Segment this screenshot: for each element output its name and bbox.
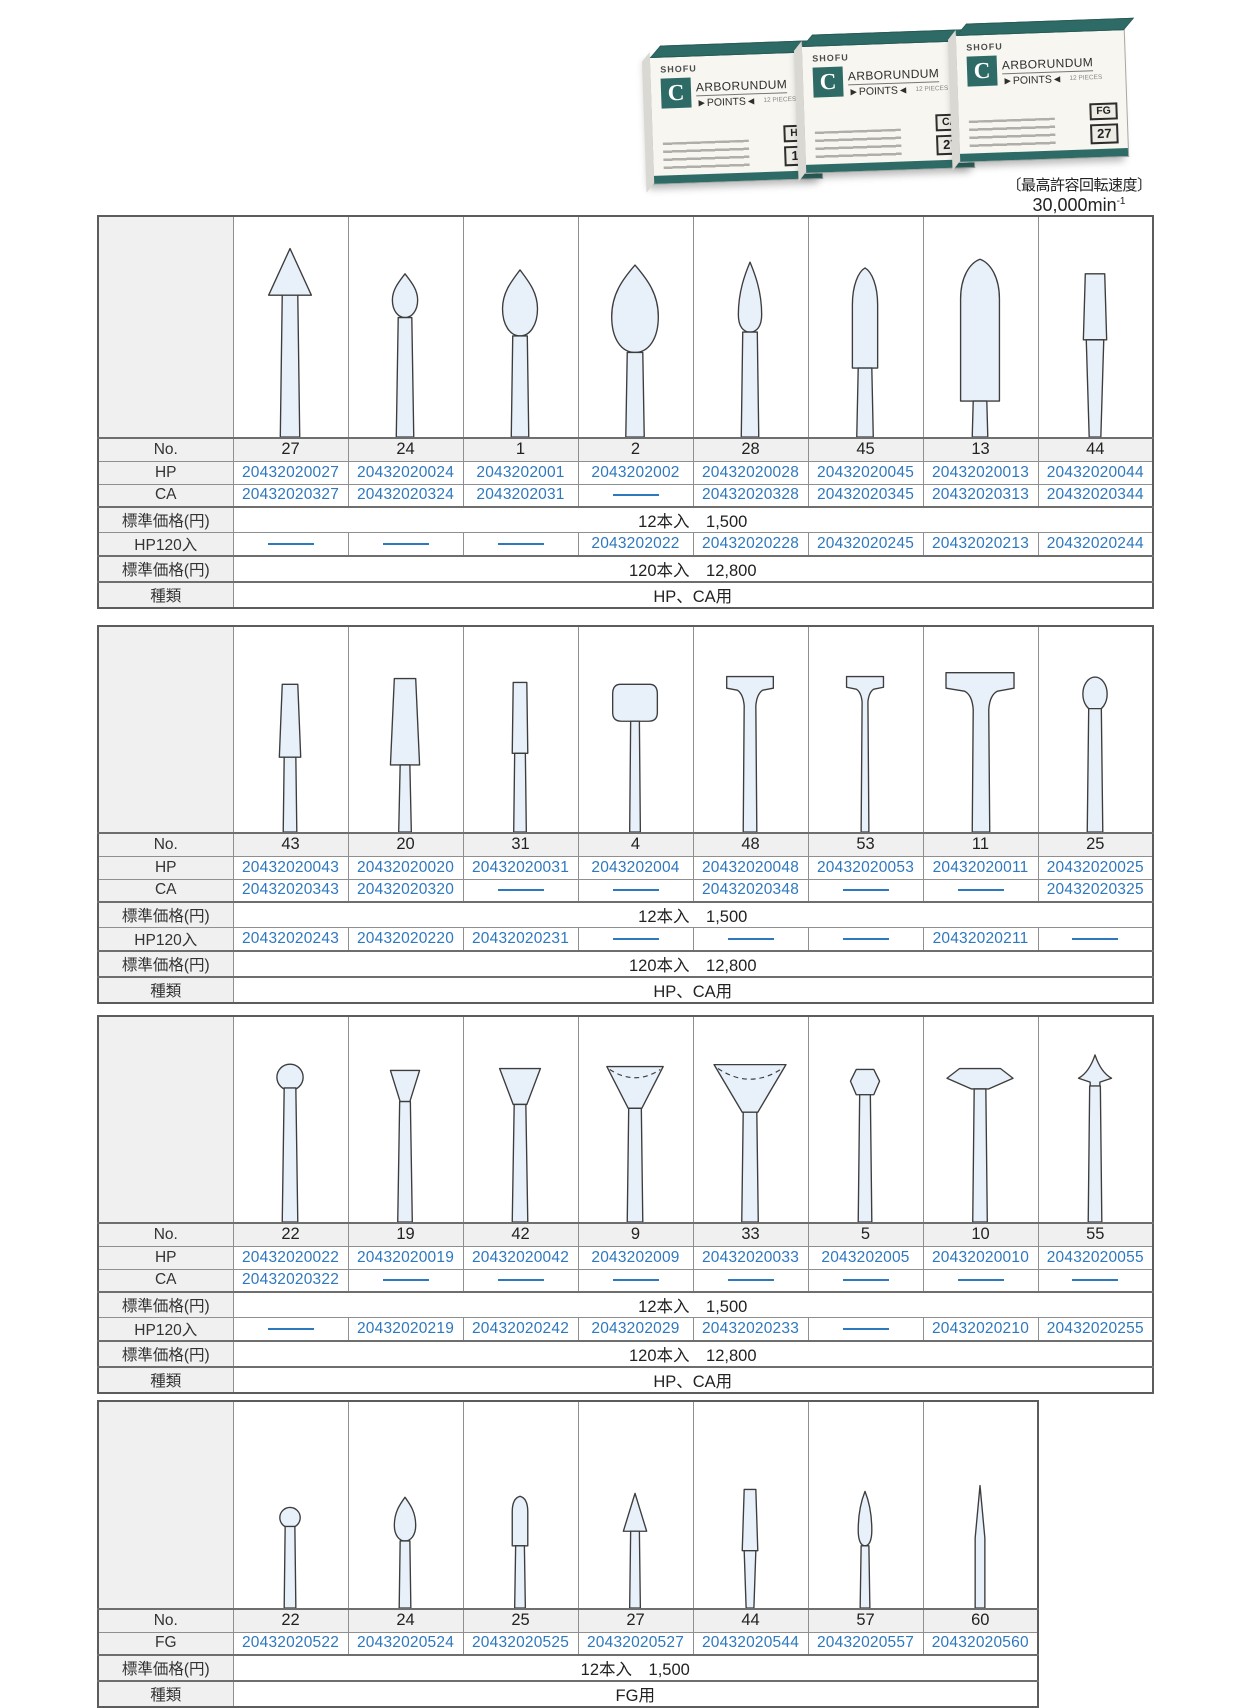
box-bottom-strip (960, 148, 1128, 162)
no-cell: 20 (348, 833, 463, 856)
product-title: ARBORUNDUM (848, 66, 940, 85)
row-label-cell: HP (98, 1246, 233, 1269)
shape-cell (808, 216, 923, 438)
inverted-cone-bur-icon (464, 1018, 577, 1222)
catalog-page: SHOFU C ARBORUNDUM ►POINTS◄ 12 PIECES HP… (0, 0, 1250, 1703)
no-cell: 33 (693, 1223, 808, 1246)
row-label-cell: HP120入 (98, 928, 233, 952)
code-cell (578, 1269, 693, 1292)
code-cell: 20432020525 (463, 1632, 578, 1655)
product-subtitle: ►POINTS◄ (1002, 73, 1062, 87)
no-cell: 24 (348, 438, 463, 461)
code-cell: 20432020033 (693, 1246, 808, 1269)
code-cell (808, 1318, 923, 1342)
code-cell: 2043202029 (578, 1318, 693, 1342)
max-speed-value: 30,000min-1 (998, 195, 1160, 216)
flame-slim-bur-icon (694, 233, 807, 437)
code-cell: 20432020044 (1038, 461, 1153, 484)
row-hp: HP20432020022204320200192043202004220432… (98, 1246, 1153, 1269)
row-ca: CA20432020327204320203242043202031204320… (98, 484, 1153, 507)
taper-column-wide-bur-icon (349, 628, 462, 832)
teardrop-bur-icon (464, 233, 577, 437)
product-code: 20432020013 (932, 464, 1029, 481)
inverted-cone-small-bur-icon (349, 1018, 462, 1222)
product-code: 2043202009 (591, 1249, 679, 1266)
span-value-cell: 12本入 1,500 (233, 1655, 1038, 1681)
code-cell: 20432020233 (693, 1318, 808, 1342)
pieces-text: 12 PIECES (763, 96, 796, 104)
max-speed-number: 30,000min (1033, 195, 1117, 215)
code-cell (233, 533, 348, 557)
no-cell: 10 (923, 1223, 1038, 1246)
span-value-cell: HP、CA用 (233, 977, 1153, 1003)
code-cell: 20432020348 (693, 879, 808, 902)
row-price: 標準価格(円)12本入 1,500 (98, 1655, 1038, 1681)
code-cell: 2043202005 (808, 1246, 923, 1269)
row-label-cell: 標準価格(円) (98, 1341, 233, 1367)
cup-wide-bur-icon (694, 1018, 807, 1222)
code-cell: 2043202031 (463, 484, 578, 507)
no-cell: 31 (463, 833, 578, 856)
shape-cell (693, 216, 808, 438)
row-label-cell: HP120入 (98, 1318, 233, 1342)
not-available-dash (498, 543, 544, 545)
box-bottom-strip (806, 159, 974, 173)
code-cell (808, 1269, 923, 1292)
code-cell: 20432020325 (1038, 879, 1153, 902)
row-type: 種類HP、CA用 (98, 977, 1153, 1003)
shape-row (98, 1401, 1038, 1609)
column-narrow-bur-icon (464, 628, 577, 832)
code-cell: 20432020527 (578, 1632, 693, 1655)
row-label-cell: 標準価格(円) (98, 1655, 233, 1681)
row-label-cell: 標準価格(円) (98, 902, 233, 928)
no-cell: 1 (463, 438, 578, 461)
row-type: 種類HP、CA用 (98, 1367, 1153, 1393)
row-price: 標準価格(円)12本入 1,500 (98, 1292, 1153, 1318)
shape-cell (463, 216, 578, 438)
row-label-cell: 標準価格(円) (98, 951, 233, 977)
code-cell: 20432020024 (348, 461, 463, 484)
shape-cell (463, 1016, 578, 1223)
no-cell: 27 (233, 438, 348, 461)
fineprint-text-blur (969, 118, 1056, 149)
shape-cell (808, 1401, 923, 1609)
taper-cylinder-small-bur-icon (694, 1404, 807, 1608)
product-code: 20432020255 (1047, 1320, 1144, 1337)
code-cell (578, 879, 693, 902)
row-label-cell: HP (98, 461, 233, 484)
not-available-dash (613, 938, 659, 940)
row-hp120: HP120入2043202021920432020242204320202920… (98, 1318, 1153, 1342)
row-label-cell: HP120入 (98, 533, 233, 557)
code-cell: 20432020524 (348, 1632, 463, 1655)
not-available-dash (958, 1279, 1004, 1281)
code-cell: 20432020343 (233, 879, 348, 902)
brand-logo-text: SHOFU (660, 63, 697, 74)
not-available-dash (958, 889, 1004, 891)
row-label-cell: No. (98, 438, 233, 461)
code-cell: 20432020013 (923, 461, 1038, 484)
code-cell: 20432020228 (693, 533, 808, 557)
bullet-small-bur-icon (464, 1404, 577, 1608)
no-cell: 25 (463, 1609, 578, 1632)
product-subtitle: ►POINTS◄ (696, 95, 756, 109)
product-code: 20432020231 (472, 930, 569, 947)
shape-cell (578, 1401, 693, 1609)
product-title: ARBORUNDUM (696, 77, 788, 96)
shape-cell (348, 1401, 463, 1609)
code-cell: 20432020031 (463, 856, 578, 879)
product-subtitle: ►POINTS◄ (848, 84, 908, 98)
max-speed-exponent: -1 (1117, 196, 1126, 207)
no-cell: 11 (923, 833, 1038, 856)
no-cell: 25 (1038, 833, 1153, 856)
row-label-cell: 標準価格(円) (98, 507, 233, 533)
row-price: 標準価格(円)120本入 12,800 (98, 951, 1153, 977)
product-code: 20432020327 (242, 486, 339, 503)
knob-bur-icon (579, 628, 692, 832)
product-code: 2043202005 (821, 1249, 909, 1266)
span-value-cell: 120本入 12,800 (233, 1341, 1153, 1367)
cup-bur-icon (579, 1018, 692, 1222)
product-code: 20432020220 (357, 930, 454, 947)
code-cell: 20432020028 (693, 461, 808, 484)
product-title: ARBORUNDUM (1002, 55, 1094, 74)
code-cell: 20432020313 (923, 484, 1038, 507)
code-cell (233, 1318, 348, 1342)
not-available-dash (1072, 938, 1118, 940)
product-code: 20432020044 (1047, 464, 1144, 481)
no-cell: 44 (693, 1609, 808, 1632)
not-available-dash (383, 1279, 429, 1281)
c-logo-icon: C (661, 78, 692, 109)
code-cell: 20432020328 (693, 484, 808, 507)
product-code: 20432020025 (1047, 859, 1144, 876)
not-available-dash (1072, 1279, 1118, 1281)
torpedo-bur-icon (924, 233, 1037, 437)
shape-cell (1038, 216, 1153, 438)
product-code: 20432020019 (357, 1249, 454, 1266)
not-available-dash (268, 543, 314, 545)
row-label-cell: FG (98, 1632, 233, 1655)
pieces-text: 12 PIECES (1069, 74, 1102, 82)
product-code: 2043202002 (591, 464, 679, 481)
no-cell: 42 (463, 1223, 578, 1246)
shape-cell (693, 626, 808, 833)
shape-cell (578, 1016, 693, 1223)
product-code: 20432020043 (242, 859, 339, 876)
code-cell: 20432020220 (348, 928, 463, 952)
max-speed-note: 〔最高許容回転速度〕 30,000min-1 (998, 174, 1160, 216)
shape-row-label-cell (98, 216, 233, 438)
product-code: 20432020557 (817, 1634, 914, 1651)
span-value-cell: 120本入 12,800 (233, 556, 1153, 582)
code-cell (1038, 1269, 1153, 1292)
row-hp: HP20432020027204320200242043202001204320… (98, 461, 1153, 484)
code-cell: 20432020011 (923, 856, 1038, 879)
product-code: 20432020328 (702, 486, 799, 503)
no-cell: 2 (578, 438, 693, 461)
code-cell: 20432020019 (348, 1246, 463, 1269)
product-code: 20432020053 (817, 859, 914, 876)
product-code: 20432020211 (933, 930, 1029, 947)
row-label-cell: CA (98, 484, 233, 507)
number-tag: 27 (1090, 123, 1119, 144)
span-value-cell: FG用 (233, 1681, 1038, 1707)
product-code: 2043202001 (476, 464, 564, 481)
box-bottom-strip (654, 170, 822, 184)
product-code: 20432020325 (1047, 881, 1144, 898)
code-cell: 20432020025 (1038, 856, 1153, 879)
code-cell: 2043202002 (578, 461, 693, 484)
shape-cell (923, 1401, 1038, 1609)
no-cell: 19 (348, 1223, 463, 1246)
row-hp: HP20432020043204320200202043202003120432… (98, 856, 1153, 879)
code-cell: 20432020048 (693, 856, 808, 879)
ball-bur-icon (234, 1018, 347, 1222)
code-cell: 20432020345 (808, 484, 923, 507)
product-code: 20432020024 (357, 464, 454, 481)
product-code: 20432020345 (817, 486, 914, 503)
bullet-bur-icon (809, 233, 922, 437)
code-cell: 20432020213 (923, 533, 1038, 557)
span-value-cell: HP、CA用 (233, 582, 1153, 608)
code-cell: 20432020244 (1038, 533, 1153, 557)
shape-cell (923, 216, 1038, 438)
needle-bur-icon (924, 1404, 1037, 1608)
row-hp120: HP120入2043202024320432020220204320202312… (98, 928, 1153, 952)
product-photo: SHOFU C ARBORUNDUM ►POINTS◄ 12 PIECES HP… (645, 16, 1155, 186)
no-cell: 55 (1038, 1223, 1153, 1246)
code-cell: 20432020231 (463, 928, 578, 952)
code-cell (923, 1269, 1038, 1292)
product-code: 20432020028 (702, 464, 799, 481)
row-label-cell: No. (98, 833, 233, 856)
no-cell: 45 (808, 438, 923, 461)
not-available-dash (613, 1279, 659, 1281)
not-available-dash (843, 1279, 889, 1281)
not-available-dash (498, 889, 544, 891)
code-cell: 20432020211 (923, 928, 1038, 952)
shape-row (98, 1016, 1153, 1223)
row-label-cell: CA (98, 1269, 233, 1292)
code-cell (693, 1269, 808, 1292)
row-label-cell: 種類 (98, 977, 233, 1003)
code-cell (348, 533, 463, 557)
code-cell: 2043202001 (463, 461, 578, 484)
product-code: 20432020048 (702, 859, 799, 876)
shape-cell (923, 1016, 1038, 1223)
bud-bur-icon (349, 233, 462, 437)
product-code: 20432020027 (242, 464, 339, 481)
no-cell: 60 (923, 1609, 1038, 1632)
not-available-dash (728, 1279, 774, 1281)
tee-wheel-large-bur-icon (924, 628, 1037, 832)
product-code: 20432020244 (1047, 535, 1144, 552)
code-cell (923, 879, 1038, 902)
max-speed-label: 〔最高許容回転速度〕 (998, 174, 1160, 195)
shape-cell (693, 1016, 808, 1223)
no-cell: 13 (923, 438, 1038, 461)
code-cell: 20432020522 (233, 1632, 348, 1655)
arrow-point-bur-icon (1039, 1018, 1152, 1222)
not-available-dash (498, 1279, 544, 1281)
code-cell: 20432020560 (923, 1632, 1038, 1655)
row-no: No.22194293351055 (98, 1223, 1153, 1246)
not-available-dash (843, 938, 889, 940)
shape-cell (693, 1401, 808, 1609)
product-code: 20432020245 (817, 535, 914, 552)
code-cell (578, 484, 693, 507)
not-available-dash (268, 1328, 314, 1330)
no-cell: 48 (693, 833, 808, 856)
product-code: 20432020544 (702, 1634, 799, 1651)
row-no: No.27241228451344 (98, 438, 1153, 461)
code-cell: 20432020327 (233, 484, 348, 507)
code-cell (463, 1269, 578, 1292)
egg-bur-icon (1039, 628, 1152, 832)
code-cell: 20432020042 (463, 1246, 578, 1269)
code-cell: 2043202009 (578, 1246, 693, 1269)
code-cell: 20432020055 (1038, 1246, 1153, 1269)
product-code: 20432020522 (242, 1634, 339, 1651)
row-type: 種類HP、CA用 (98, 582, 1153, 608)
row-price: 標準価格(円)120本入 12,800 (98, 556, 1153, 582)
code-cell (1038, 928, 1153, 952)
row-label-cell: No. (98, 1609, 233, 1632)
no-cell: 22 (233, 1223, 348, 1246)
row-label-cell: CA (98, 879, 233, 902)
product-code: 20432020022 (242, 1249, 339, 1266)
shape-cell (808, 1016, 923, 1223)
code-cell (463, 879, 578, 902)
tee-wheel-small-bur-icon (809, 628, 922, 832)
code-cell: 20432020255 (1038, 1318, 1153, 1342)
code-cell: 20432020242 (463, 1318, 578, 1342)
cone-small-bur-icon (579, 1404, 692, 1608)
code-cell (578, 928, 693, 952)
code-cell: 20432020324 (348, 484, 463, 507)
flame-small-bur-icon (349, 1404, 462, 1608)
box-lid (956, 18, 1134, 36)
product-code: 20432020344 (1047, 486, 1144, 503)
row-no: No.432031448531125 (98, 833, 1153, 856)
shape-cell (348, 216, 463, 438)
product-code: 20432020242 (472, 1320, 569, 1337)
code-cell (348, 1269, 463, 1292)
product-code: 20432020055 (1047, 1249, 1144, 1266)
shape-row (98, 626, 1153, 833)
row-label-cell: 種類 (98, 1367, 233, 1393)
row-label-cell: HP (98, 856, 233, 879)
shape-cell (808, 626, 923, 833)
code-cell: 20432020045 (808, 461, 923, 484)
no-cell: 4 (578, 833, 693, 856)
row-type: 種類FG用 (98, 1681, 1038, 1707)
teardrop-large-bur-icon (579, 233, 692, 437)
code-cell (808, 928, 923, 952)
product-code: 20432020524 (357, 1634, 454, 1651)
no-cell: 53 (808, 833, 923, 856)
row-fg: FG20432020522204320205242043202052520432… (98, 1632, 1038, 1655)
product-code: 20432020011 (933, 859, 1029, 876)
shape-cell (233, 1016, 348, 1223)
no-cell: 22 (233, 1609, 348, 1632)
fineprint-text-blur (663, 140, 750, 171)
code-cell: 20432020022 (233, 1246, 348, 1269)
code-cell (693, 928, 808, 952)
row-label-cell: 種類 (98, 1681, 233, 1707)
product-code: 2043202004 (591, 859, 679, 876)
product-table-3: No.22194293351055HP204320200222043202001… (97, 1015, 1154, 1394)
no-cell: 57 (808, 1609, 923, 1632)
code-cell: 20432020053 (808, 856, 923, 879)
row-hp120: HP120入2043202022204320202282043202024520… (98, 533, 1153, 557)
code-cell: 20432020027 (233, 461, 348, 484)
product-code: 20432020228 (702, 535, 799, 552)
flame-slim-small-bur-icon (809, 1404, 922, 1608)
knife-edge-wheel-bur-icon (924, 1018, 1037, 1222)
row-price: 標準価格(円)120本入 12,800 (98, 1341, 1153, 1367)
box-side (642, 52, 654, 193)
product-table-4-fg: No.22242527445760FG204320205222043202052… (97, 1400, 1039, 1708)
code-cell: 20432020322 (233, 1269, 348, 1292)
taper-cylinder-bur-icon (1039, 233, 1152, 437)
taper-column-bur-icon (234, 628, 347, 832)
code-cell (808, 879, 923, 902)
code-cell: 20432020010 (923, 1246, 1038, 1269)
code-cell: 20432020243 (233, 928, 348, 952)
row-no: No.22242527445760 (98, 1609, 1038, 1632)
shape-cell (923, 626, 1038, 833)
no-cell: 24 (348, 1609, 463, 1632)
row-label-cell: 種類 (98, 582, 233, 608)
product-code: 20432020527 (587, 1634, 684, 1651)
no-cell: 5 (808, 1223, 923, 1246)
shape-cell (463, 1401, 578, 1609)
product-code: 20432020324 (357, 486, 454, 503)
span-value-cell: 12本入 1,500 (233, 1292, 1153, 1318)
no-cell: 28 (693, 438, 808, 461)
product-box-fg: SHOFU C ARBORUNDUM ►POINTS◄ 12 PIECES FG… (955, 29, 1129, 163)
code-cell: 20432020245 (808, 533, 923, 557)
product-code: 20432020042 (472, 1249, 569, 1266)
c-logo-icon: C (813, 67, 844, 98)
code-cell: 20432020344 (1038, 484, 1153, 507)
not-available-dash (728, 938, 774, 940)
row-label-cell: No. (98, 1223, 233, 1246)
product-code: 20432020020 (357, 859, 454, 876)
not-available-dash (383, 543, 429, 545)
not-available-dash (843, 889, 889, 891)
shape-row (98, 216, 1153, 438)
product-code: 20432020313 (932, 486, 1029, 503)
row-ca: CA20432020322 (98, 1269, 1153, 1292)
product-table-1: No.27241228451344HP204320200272043202002… (97, 215, 1154, 609)
barrel-bur-icon (809, 1018, 922, 1222)
code-cell: 2043202022 (578, 533, 693, 557)
product-code: 20432020045 (817, 464, 914, 481)
code-cell: 20432020557 (808, 1632, 923, 1655)
shape-cell (233, 1401, 348, 1609)
shape-cell (1038, 1016, 1153, 1223)
product-code: 20432020343 (242, 881, 339, 898)
code-cell: 20432020020 (348, 856, 463, 879)
code-cell: 20432020320 (348, 879, 463, 902)
no-cell: 44 (1038, 438, 1153, 461)
shape-cell (233, 216, 348, 438)
